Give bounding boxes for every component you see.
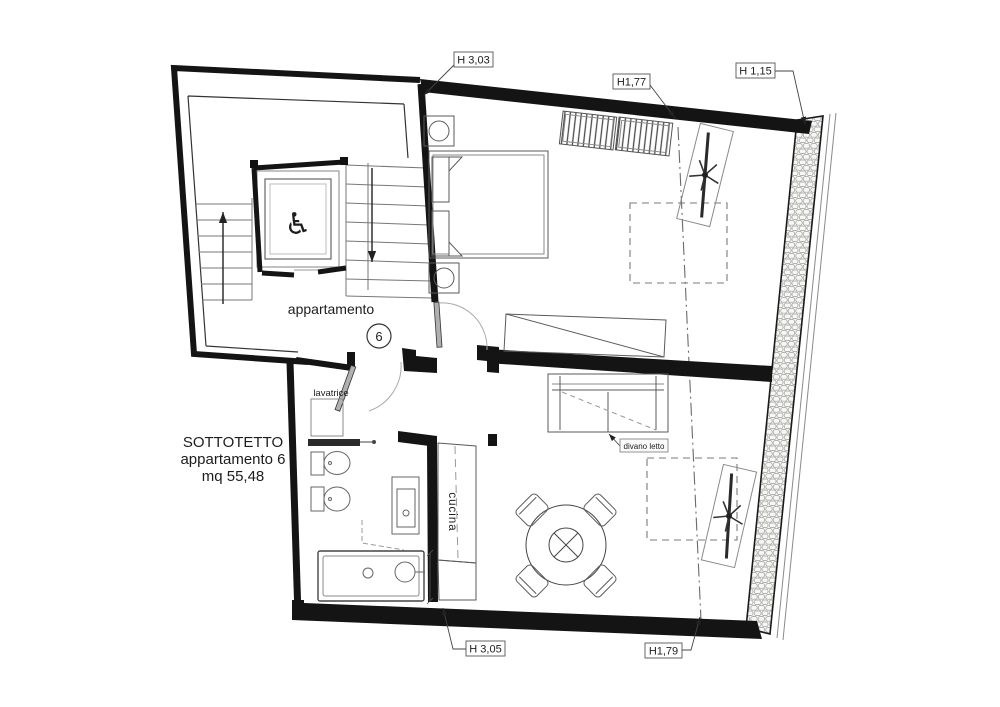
elevator: ♿ xyxy=(250,157,348,275)
floor-plan-page: ♿ appartamento 6 xyxy=(0,0,1000,707)
double-bed xyxy=(429,151,548,258)
height-label: H 3,03 xyxy=(457,55,489,67)
sink xyxy=(392,477,419,534)
bedroom-door-leaf xyxy=(434,302,442,347)
height-label: H1,77 xyxy=(617,77,646,89)
kitchen-wall-stub xyxy=(398,431,437,447)
height-label: H 1,15 xyxy=(739,66,771,78)
landing-apartment-label: appartamento xyxy=(288,301,375,317)
summary-line-3: mq 55,48 xyxy=(202,468,265,485)
elevator-wall-top xyxy=(254,162,344,168)
entry-door-swing xyxy=(369,362,401,411)
height-label: H 3,05 xyxy=(469,644,501,656)
chair xyxy=(514,563,549,598)
area-summary: SOTTOTETTO appartamento 6 mq 55,48 xyxy=(180,434,285,485)
washbasin-shelf xyxy=(308,439,376,446)
toilet xyxy=(311,487,350,511)
interior-dividing-wall xyxy=(487,349,772,382)
dining-table xyxy=(514,492,617,598)
stairwell: ♿ appartamento 6 xyxy=(174,68,432,362)
summary-line-2: appartamento 6 xyxy=(180,451,285,468)
sofa-bed-label: divano letto xyxy=(624,442,665,451)
summary-line-1: SOTTOTETTO xyxy=(183,434,283,451)
chair xyxy=(582,563,617,598)
chair xyxy=(514,492,549,527)
height-label: H1,79 xyxy=(649,646,678,658)
roof-height-dashed-zone-living xyxy=(647,458,737,540)
blanket-fold xyxy=(449,242,462,256)
bedroom-door xyxy=(434,302,487,350)
hall-pillar xyxy=(402,348,437,373)
bidet xyxy=(311,452,350,476)
wardrobe xyxy=(504,314,666,357)
elevator-wall-left xyxy=(254,168,260,272)
bedroom xyxy=(424,111,673,357)
wall-post xyxy=(250,160,258,168)
elevator-wall-bottom-right xyxy=(318,268,346,272)
bedroom-door-swing xyxy=(439,303,487,350)
floor-plan-canvas: ♿ appartamento 6 xyxy=(0,0,1000,707)
bathroom-left-wall xyxy=(290,362,298,616)
pillow xyxy=(432,157,449,202)
chair xyxy=(582,492,617,527)
sofa-bed-callout: divano letto xyxy=(609,434,668,452)
plumbing-dashed-line xyxy=(362,520,404,550)
bathtub xyxy=(318,551,425,601)
kitchen-label: cucina xyxy=(446,492,458,531)
blanket-fold xyxy=(449,157,462,171)
sofa-bed xyxy=(548,374,668,432)
lamp-icon xyxy=(434,268,454,288)
bathroom-top-wall xyxy=(296,360,352,368)
stair-treads-right xyxy=(346,162,432,298)
wall-post xyxy=(340,157,348,165)
ceiling-fan-icon xyxy=(701,464,756,567)
bathroom xyxy=(308,399,433,604)
living-room xyxy=(438,374,668,600)
roof-window xyxy=(559,111,616,150)
bottom-wall xyxy=(292,600,762,639)
wheelchair-icon: ♿ xyxy=(285,208,312,241)
ceiling-fan-icon xyxy=(677,123,734,226)
kitchen-bathroom-wall xyxy=(427,445,438,602)
lamp-icon xyxy=(429,121,449,141)
counter-wall-return xyxy=(488,434,497,446)
elevator-wall-bottom-left xyxy=(262,273,294,275)
entry-door-post xyxy=(347,352,355,367)
stair-treads-left xyxy=(196,198,252,300)
washing-machine-label: lavatrice xyxy=(313,388,348,399)
roof-window xyxy=(615,117,672,156)
unit-number: 6 xyxy=(375,329,382,344)
